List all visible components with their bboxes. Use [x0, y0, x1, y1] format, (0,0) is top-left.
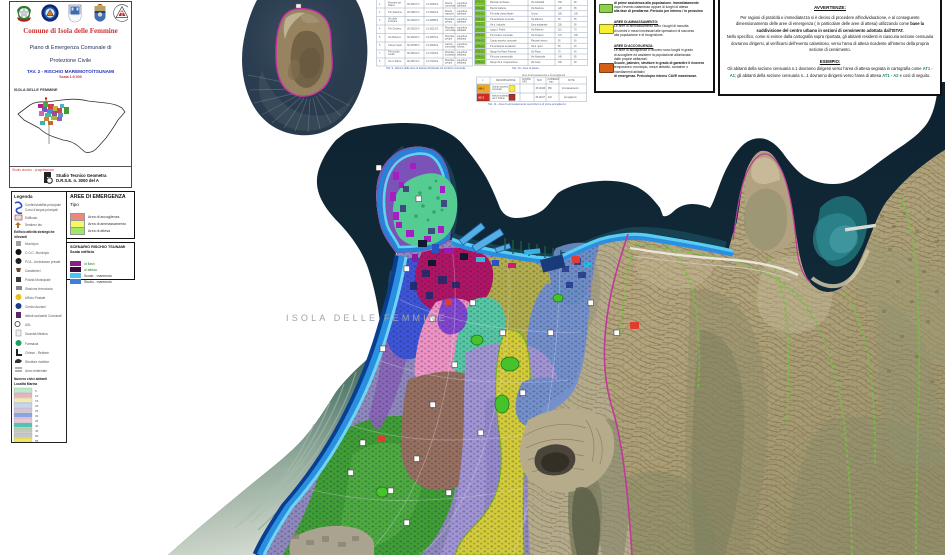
svg-text:/rilevanti: /rilevanti: [14, 235, 27, 239]
svg-text:Aree di ammassamento e di acco: Aree di ammassamento e di accoglienza: [522, 74, 566, 77]
svg-text:AM-1: AM-1: [478, 87, 485, 91]
svg-text:scolastico: scolastico: [445, 54, 456, 57]
svg-text:privato: privato: [445, 38, 453, 41]
svg-text:NOTE: NOTE: [568, 80, 575, 82]
svg-text:Confini/viabilità principale: Confini/viabilità principale: [25, 203, 61, 207]
svg-text:38.18944 N: 38.18944 N: [407, 36, 420, 39]
svg-text:Slargo Via Piano Ponente: Slargo Via Piano Ponente: [490, 50, 517, 53]
svg-text:P.le zona commerciale: P.le zona commerciale: [490, 56, 514, 59]
svg-text:Istituti scolastici Comunali: Istituti scolastici Comunali: [25, 314, 62, 318]
svg-text:AT5-A2: AT5-A2: [476, 50, 484, 53]
svg-text:Edificato: Edificato: [25, 216, 37, 220]
svg-text:PCA - Ambulanze private: PCA - Ambulanze private: [25, 260, 61, 264]
svg-text:60: 60: [574, 41, 577, 43]
svg-text:13.17220 E: 13.17220 E: [426, 60, 439, 63]
svg-text:8: 8: [379, 60, 381, 63]
svg-text:Piazzale del Paese: Piazzale del Paese: [490, 2, 510, 4]
svg-text:comunale: comunale: [492, 89, 503, 91]
svg-text:AT3-A1: AT3-A1: [476, 23, 484, 26]
svg-text:950: 950: [548, 88, 553, 90]
svg-text:Chiese - Rettorie: Chiese - Rettorie: [25, 351, 49, 355]
svg-text:Via Marconi: Via Marconi: [531, 18, 544, 21]
svg-text:GPS: GPS: [522, 82, 527, 84]
svg-text:Centro: Centro: [531, 13, 539, 16]
svg-text:Via Palermo: Via Palermo: [388, 36, 402, 39]
svg-text:38.19310 N: 38.19310 N: [407, 19, 420, 22]
svg-text:Centro Anziani: Centro Anziani: [25, 305, 46, 309]
svg-text:Campo Sport: Campo Sport: [388, 44, 402, 47]
svg-text:85: 85: [558, 46, 561, 48]
svg-text:asfaltata: asfaltata: [457, 29, 467, 32]
svg-text:95: 95: [558, 41, 561, 43]
svg-text:AT1-A2: AT1-A2: [476, 7, 484, 10]
svg-text:13.17033 E: 13.17033 E: [426, 52, 439, 55]
svg-text:privato: privato: [445, 62, 453, 65]
svg-text:25: 25: [35, 409, 39, 413]
svg-text:CAPIENZA: CAPIENZA: [548, 78, 560, 81]
svg-text:Via d. Industrie: Via d. Industrie: [490, 23, 506, 26]
svg-text:38.19217: 38.19217: [536, 97, 546, 99]
svg-text:AT4-A1: AT4-A1: [476, 34, 484, 37]
svg-text:Campo sportivo: Campo sportivo: [492, 86, 509, 89]
svg-text:Municipio: Municipio: [25, 242, 39, 246]
svg-text:13.15922 E: 13.15922 E: [426, 11, 439, 14]
svg-text:Via d. sport: Via d. sport: [531, 45, 543, 48]
svg-text:ASL: ASL: [25, 323, 31, 327]
svg-text:P.le Cimitero: P.le Cimitero: [388, 28, 402, 31]
svg-text:media: media: [388, 53, 395, 56]
svg-text:13.16570 E: 13.16570 E: [426, 36, 439, 39]
svg-text:Via Coop: Via Coop: [531, 62, 541, 64]
svg-text:AT2-A1: AT2-A1: [476, 13, 484, 16]
svg-text:SUP.: SUP.: [537, 80, 542, 82]
svg-text:Ufficio Postale: Ufficio Postale: [25, 296, 46, 300]
svg-text:asfaltata: asfaltata: [457, 62, 467, 65]
svg-text:Via d. Palme: Via d. Palme: [388, 60, 402, 63]
svg-text:110: 110: [558, 30, 562, 32]
svg-text:90: 90: [558, 19, 561, 21]
svg-text:ISOLA DELLE FEMMINE: ISOLA DELLE FEMMINE: [286, 313, 448, 323]
svg-text:75: 75: [558, 51, 561, 53]
svg-text:Piazzale interno: Piazzale interno: [531, 40, 548, 43]
svg-text:38.18474 N: 38.18474 N: [407, 60, 420, 63]
svg-text:via d. Palme: via d. Palme: [492, 98, 505, 100]
svg-text:Via Cimitero: Via Cimitero: [531, 34, 544, 37]
svg-text:40: 40: [574, 51, 577, 53]
svg-text:Tab. 9 - Elenco delle aree di: Tab. 9 - Elenco delle aree di attesa ind…: [386, 66, 466, 70]
svg-text:Guardia Medica: Guardia Medica: [25, 332, 48, 336]
svg-text:20: 20: [35, 404, 39, 408]
svg-text:10: 10: [35, 394, 39, 398]
svg-text:15: 15: [35, 399, 39, 403]
svg-text:13.16054 E: 13.16054 E: [426, 3, 439, 6]
svg-text:AT4-A2: AT4-A2: [476, 40, 484, 43]
svg-text:38.19446: 38.19446: [536, 88, 546, 90]
svg-text:80: 80: [574, 2, 577, 4]
svg-text:50: 50: [35, 434, 39, 438]
svg-text:Industrie: Industrie: [388, 20, 398, 23]
svg-text:AT2-A2: AT2-A2: [476, 18, 484, 21]
svg-text:stazione: stazione: [445, 13, 455, 16]
svg-text:45: 45: [35, 429, 39, 433]
svg-text:38.18788 N: 38.18788 N: [407, 44, 420, 47]
svg-text:Istituto scolastico: Istituto scolastico: [492, 95, 510, 98]
svg-text:asfaltata: asfaltata: [457, 5, 467, 8]
svg-text:comunale: comunale: [445, 29, 456, 32]
svg-text:90: 90: [574, 62, 577, 64]
svg-text:Campo sportivo comunale: Campo sportivo comunale: [490, 40, 517, 43]
svg-text:120: 120: [558, 8, 563, 10]
svg-text:Sentiero btc: Sentiero btc: [25, 223, 42, 227]
svg-text:P.le antistante la scuola: P.le antistante la scuola: [490, 18, 515, 21]
svg-text:35: 35: [35, 419, 39, 423]
svg-text:4: 4: [379, 28, 381, 31]
svg-text:40: 40: [35, 424, 39, 428]
svg-text:3: 3: [379, 19, 381, 22]
svg-text:100: 100: [574, 35, 579, 37]
svg-text:1: 1: [379, 3, 381, 6]
svg-text:Ammassamento: Ammassamento: [562, 87, 579, 90]
svg-text:Paese: Paese: [388, 4, 395, 7]
svg-text:Località Marina: Località Marina: [14, 382, 37, 386]
svg-text:Piazza Stazione: Piazza Stazione: [490, 7, 507, 10]
svg-text:AT5-A1: AT5-A1: [476, 45, 484, 48]
svg-text:Farmacia: Farmacia: [25, 342, 39, 346]
svg-text:65: 65: [574, 8, 577, 10]
svg-text:Accoglienza: Accoglienza: [564, 96, 577, 99]
svg-text:comunale: comunale: [445, 46, 456, 49]
svg-text:P.le antistante la palestra: P.le antistante la palestra: [490, 45, 516, 48]
svg-text:160: 160: [558, 62, 563, 64]
svg-text:Strutture ricettive: Strutture ricettive: [25, 360, 49, 364]
svg-text:5: 5: [35, 389, 37, 393]
svg-text:P.le della chiesa Madre: P.le della chiesa Madre: [490, 13, 514, 16]
svg-text:38.18631 N: 38.18631 N: [407, 52, 420, 55]
svg-text:Via Nazionale: Via Nazionale: [531, 57, 546, 59]
svg-text:7: 7: [379, 52, 381, 55]
svg-text:P.le cimitero comunale: P.le cimitero comunale: [490, 34, 514, 37]
svg-text:AT6-A2: AT6-A2: [476, 61, 484, 64]
svg-text:13.16846 E: 13.16846 E: [426, 44, 439, 47]
svg-text:30: 30: [35, 414, 39, 418]
svg-text:2: 2: [379, 11, 381, 14]
svg-text:erbosa: erbosa: [457, 46, 465, 49]
svg-text:Largo d. Palme: Largo d. Palme: [490, 29, 506, 32]
svg-text:Tab. 10 - Aree di attesa: Tab. 10 - Aree di attesa: [512, 66, 539, 70]
svg-text:AT6-A1: AT6-A1: [476, 56, 484, 59]
svg-text:55: 55: [35, 439, 39, 442]
svg-text:n: n: [482, 80, 484, 82]
svg-text:asfaltata: asfaltata: [457, 38, 467, 41]
svg-text:Via Stazione: Via Stazione: [531, 7, 545, 10]
svg-text:Tab. 11 - Aree di ammassamento: Tab. 11 - Aree di ammassamento soccorrit…: [488, 102, 566, 106]
svg-text:Polizia Municipale: Polizia Municipale: [25, 278, 51, 282]
svg-text:70: 70: [574, 30, 577, 32]
svg-text:55: 55: [574, 19, 577, 21]
svg-text:38.19547 N: 38.19547 N: [407, 3, 420, 6]
svg-text:Slargo via d. Cooperazione: Slargo via d. Cooperazione: [490, 61, 518, 64]
svg-text:asfaltata: asfaltata: [457, 54, 467, 57]
svg-text:Via Piano: Via Piano: [531, 51, 542, 53]
svg-text:45: 45: [574, 46, 577, 48]
svg-text:privato: privato: [445, 21, 453, 24]
svg-text:180: 180: [558, 14, 563, 16]
svg-text:150: 150: [558, 2, 563, 4]
svg-text:Via Palermo: Via Palermo: [531, 29, 544, 32]
svg-text:Area cimiteriale: Area cimiteriale: [25, 369, 47, 373]
svg-text:13.16588 E: 13.16588 E: [426, 19, 439, 22]
svg-text:max: max: [549, 82, 554, 84]
svg-text:140: 140: [558, 57, 563, 59]
svg-text:AT1-A1: AT1-A1: [476, 0, 484, 3]
svg-text:100: 100: [574, 14, 579, 16]
svg-text:38.19152 N: 38.19152 N: [407, 28, 420, 31]
svg-text:Via Garibaldi: Via Garibaldi: [531, 1, 545, 4]
svg-text:C.O.C. Municipio: C.O.C. Municipio: [25, 251, 49, 255]
svg-text:5: 5: [379, 36, 381, 39]
svg-text:Numero civici abitanti: Numero civici abitanti: [14, 377, 47, 381]
svg-text:AC-1: AC-1: [478, 95, 485, 99]
svg-text:85: 85: [574, 57, 577, 59]
svg-text:38.19821 N: 38.19821 N: [407, 11, 420, 14]
svg-text:Carabinieri: Carabinieri: [25, 269, 41, 273]
svg-text:170: 170: [558, 35, 563, 37]
svg-text:AT3-A2: AT3-A2: [476, 29, 484, 32]
svg-text:Zona artigianale: Zona artigianale: [531, 23, 548, 26]
svg-text:13.16213 E: 13.16213 E: [426, 28, 439, 31]
svg-text:Stazione ferroviaria: Stazione ferroviaria: [25, 287, 53, 291]
svg-text:asfaltata: asfaltata: [457, 13, 467, 16]
svg-text:95: 95: [574, 24, 577, 26]
svg-text:Corsi d'acqua principali: Corsi d'acqua principali: [25, 208, 58, 212]
svg-text:asfaltata: asfaltata: [457, 21, 467, 24]
svg-text:Edificio attività strategiche: Edificio attività strategiche: [14, 230, 55, 234]
svg-text:comunale: comunale: [445, 5, 456, 8]
svg-text:200: 200: [558, 24, 563, 26]
svg-text:DENOMINAZIONE: DENOMINAZIONE: [496, 79, 516, 82]
svg-text:6: 6: [379, 44, 381, 47]
svg-text:P.le Stazione: P.le Stazione: [388, 11, 402, 14]
svg-text:420: 420: [548, 97, 553, 99]
